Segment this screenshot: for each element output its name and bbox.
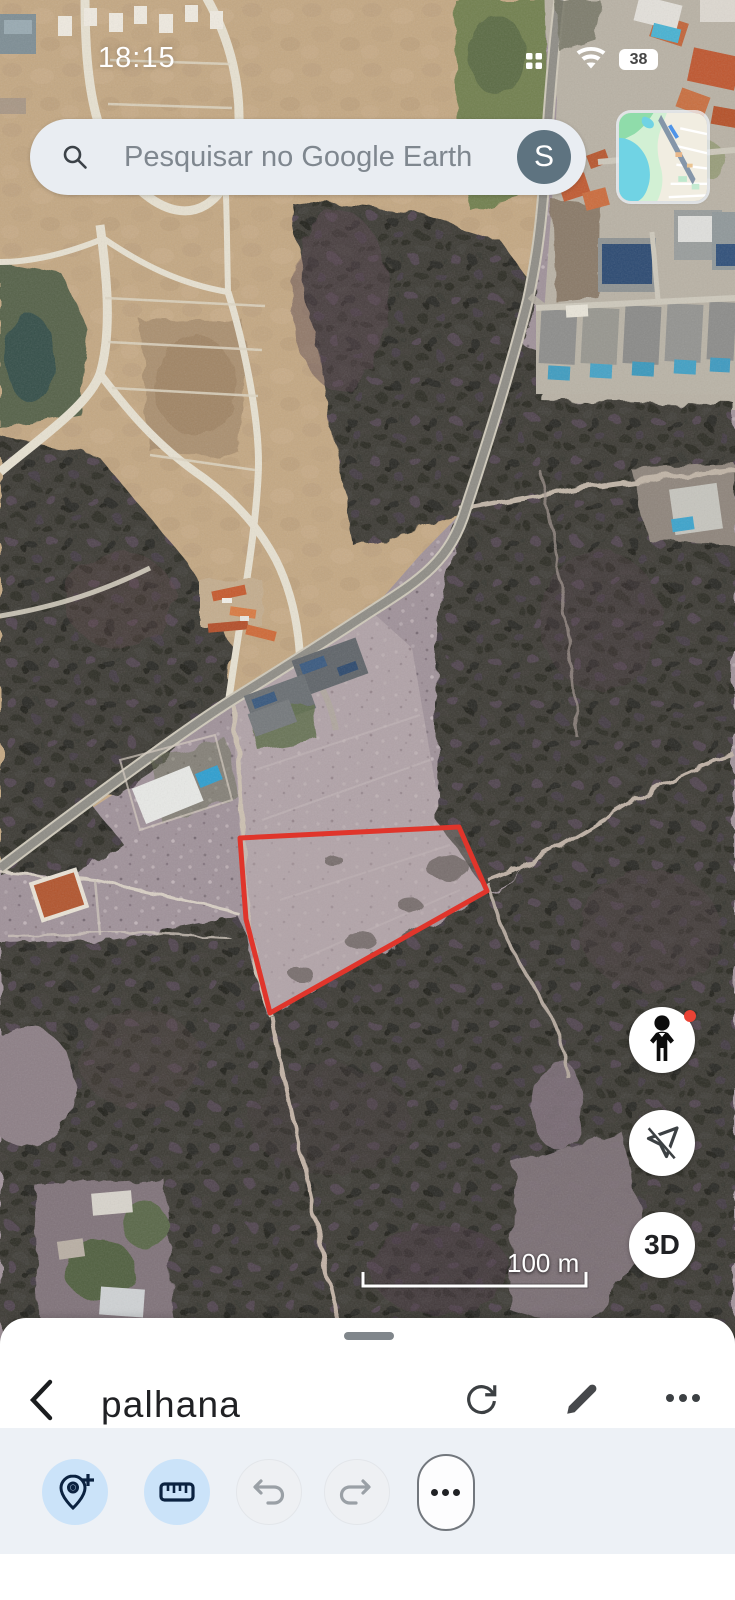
svg-text:100 m: 100 m bbox=[507, 1248, 579, 1278]
